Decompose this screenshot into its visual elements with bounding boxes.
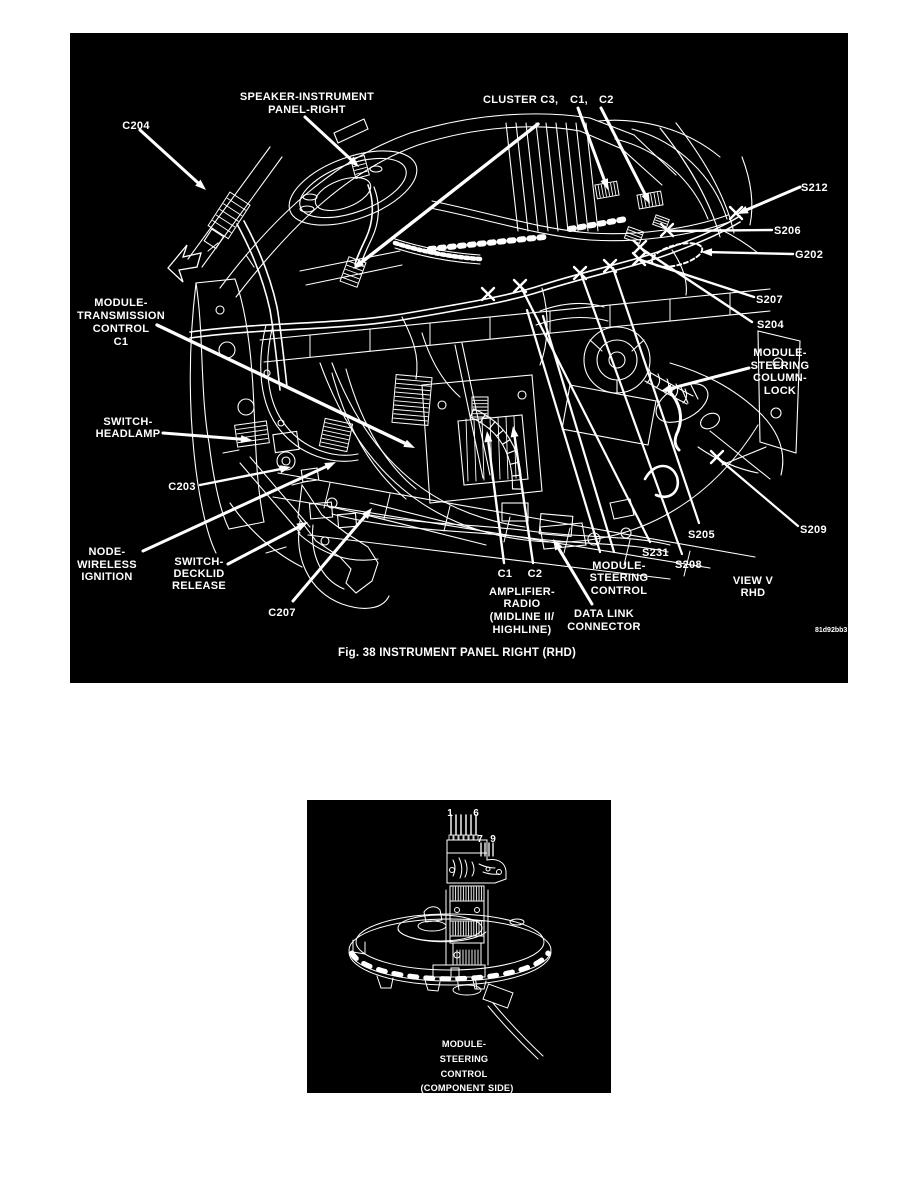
svg-text:STEERING: STEERING — [440, 1054, 489, 1064]
svg-text:7: 7 — [477, 834, 483, 845]
svg-text:C203: C203 — [168, 481, 196, 493]
svg-text:SWITCH-: SWITCH- — [174, 556, 223, 568]
svg-text:DATA LINK: DATA LINK — [574, 608, 634, 620]
svg-text:C1: C1 — [114, 336, 129, 348]
svg-text:C207: C207 — [268, 607, 296, 619]
svg-text:NODE-: NODE- — [89, 546, 126, 558]
svg-text:DECKLID: DECKLID — [174, 568, 225, 580]
svg-text:S205: S205 — [688, 529, 715, 541]
svg-text:STEERING: STEERING — [590, 572, 649, 584]
svg-text:S206: S206 — [774, 225, 801, 237]
svg-text:9: 9 — [490, 834, 496, 845]
svg-text:C2: C2 — [528, 568, 543, 580]
svg-text:PANEL-RIGHT: PANEL-RIGHT — [268, 104, 346, 116]
svg-text:SPEAKER-INSTRUMENT: SPEAKER-INSTRUMENT — [240, 91, 374, 103]
svg-text:CONTROL: CONTROL — [93, 323, 149, 335]
svg-text:STEERING: STEERING — [751, 360, 810, 372]
svg-text:S212: S212 — [801, 182, 828, 194]
svg-text:MODULE-: MODULE- — [442, 1039, 486, 1049]
svg-text:S204: S204 — [757, 319, 784, 331]
svg-text:TRANSMISSION: TRANSMISSION — [77, 310, 165, 322]
svg-text:(COMPONENT SIDE): (COMPONENT SIDE) — [420, 1083, 513, 1093]
svg-text:C1,: C1, — [570, 94, 588, 106]
svg-text:LOCK: LOCK — [764, 385, 796, 397]
svg-text:COLUMN-: COLUMN- — [753, 372, 807, 384]
svg-text:SWITCH-: SWITCH- — [103, 416, 152, 428]
svg-text:CONTROL: CONTROL — [591, 585, 647, 597]
svg-text:C1: C1 — [498, 568, 513, 580]
svg-text:WIRELESS: WIRELESS — [77, 559, 137, 571]
svg-text:C204: C204 — [122, 120, 150, 132]
svg-text:MODULE-: MODULE- — [94, 297, 147, 309]
svg-text:MODULE-: MODULE- — [753, 347, 806, 359]
svg-text:RELEASE: RELEASE — [172, 580, 226, 592]
svg-text:C2: C2 — [599, 94, 614, 106]
svg-text:(MIDLINE II/: (MIDLINE II/ — [490, 611, 555, 623]
svg-text:CLUSTER C3,: CLUSTER C3, — [483, 94, 558, 106]
svg-text:1: 1 — [447, 808, 453, 819]
svg-text:CONTROL: CONTROL — [441, 1069, 488, 1079]
svg-text:Fig. 38 INSTRUMENT PANEL RIGH: Fig. 38 INSTRUMENT PANEL RIGHT (RHD) — [338, 647, 576, 659]
svg-text:CONNECTOR: CONNECTOR — [567, 621, 640, 633]
svg-text:AMPLIFIER-: AMPLIFIER- — [489, 586, 555, 598]
svg-text:6: 6 — [473, 808, 479, 819]
svg-text:81d92bb3: 81d92bb3 — [815, 627, 847, 634]
svg-text:MODULE-: MODULE- — [592, 560, 645, 572]
svg-text:RADIO: RADIO — [504, 598, 541, 610]
svg-text:IGNITION: IGNITION — [81, 571, 132, 583]
svg-text:S209: S209 — [800, 524, 827, 536]
svg-text:S207: S207 — [756, 294, 783, 306]
svg-text:RHD: RHD — [741, 587, 766, 599]
svg-text:HEADLAMP: HEADLAMP — [96, 428, 161, 440]
svg-text:VIEW V: VIEW V — [733, 575, 774, 587]
svg-text:HIGHLINE): HIGHLINE) — [493, 624, 552, 636]
svg-text:S208: S208 — [675, 559, 702, 571]
svg-text:S231: S231 — [642, 547, 669, 559]
svg-text:G202: G202 — [795, 249, 823, 261]
